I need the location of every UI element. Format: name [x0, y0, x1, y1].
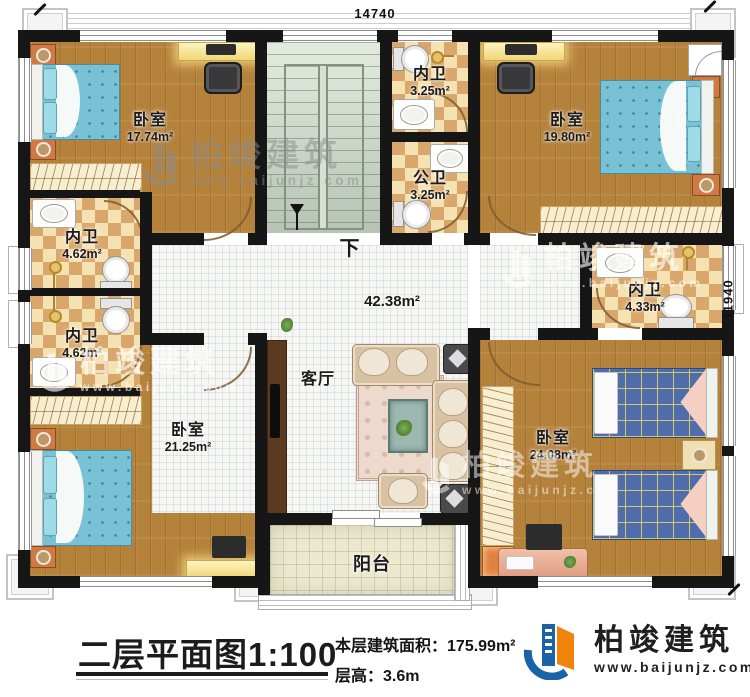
wardrobe — [30, 396, 142, 425]
brand-url: www.baijunjz.com — [594, 660, 750, 674]
window — [18, 452, 32, 550]
sink — [32, 199, 76, 228]
door-arc — [204, 197, 252, 241]
room-label-bath-public: 公卫 3.25m² — [385, 170, 475, 202]
brand-name: 柏竣建筑 — [594, 626, 750, 656]
sink — [32, 357, 76, 387]
sofa-cushion — [438, 388, 468, 416]
office-chair — [497, 62, 535, 94]
tv — [270, 384, 280, 438]
sofa-cushion — [358, 348, 390, 376]
nightstand — [30, 428, 56, 450]
computer — [212, 536, 246, 558]
bed-headboard — [701, 80, 714, 174]
wall — [248, 233, 267, 245]
sink — [596, 247, 644, 278]
floor-height-stat: 层高：3.6m — [335, 662, 419, 686]
wall — [30, 388, 140, 396]
toilet-bowl — [402, 200, 431, 229]
wall — [392, 132, 468, 142]
pillow — [594, 372, 618, 434]
room-label-bath-bl: 内卫 4.62m² — [37, 328, 127, 360]
wall — [468, 328, 490, 340]
towel-knob — [49, 310, 62, 323]
wall — [464, 233, 490, 245]
window — [80, 576, 212, 588]
stairs-down-label: 下 — [330, 238, 370, 260]
room-label-bedroom-bl: 卧室 21.25m² — [138, 422, 238, 454]
wardrobe — [30, 163, 142, 192]
pillow — [43, 102, 57, 134]
balcony-label: 阳台 — [332, 554, 412, 574]
wall — [580, 245, 592, 340]
living-name-label: 客厅 — [278, 371, 358, 389]
side-table — [440, 484, 470, 514]
bed-sheet — [660, 81, 686, 171]
wall — [255, 30, 267, 245]
brand-logo: 柏竣建筑 www.baijunjz.com — [520, 620, 750, 680]
plan-title: 二层平面图1:100 — [78, 628, 337, 676]
computer — [526, 524, 562, 550]
wall — [140, 333, 204, 345]
keyboard — [506, 556, 534, 570]
sofa-cushion — [438, 452, 468, 480]
wall — [140, 192, 152, 345]
room-label-bath-top: 内卫 3.25m² — [385, 66, 475, 98]
wall — [380, 233, 432, 245]
pillow — [43, 68, 57, 100]
window — [283, 30, 377, 42]
hallway-floor — [480, 245, 580, 340]
wall — [538, 233, 722, 245]
wall — [420, 513, 468, 525]
wall — [30, 190, 140, 198]
title-block: 二层平面图1:100 本层建筑面积：175.99m² 层高：3.6m 柏竣建筑 … — [0, 612, 750, 697]
wall — [468, 30, 480, 245]
nightstand — [30, 44, 56, 66]
window — [18, 248, 32, 290]
nightstand — [692, 174, 720, 196]
bed-footboard — [706, 368, 718, 438]
balcony-railing — [258, 594, 472, 610]
floor-plan-page: 14740 11940 卧室 17.74m² 内卫 4.62m² 内卫 4.62… — [0, 0, 750, 697]
wall — [30, 288, 140, 296]
wardrobe — [540, 206, 724, 235]
nightstand — [30, 546, 56, 568]
title-underline — [76, 672, 328, 676]
printer — [206, 44, 236, 55]
printer — [505, 44, 537, 55]
brand-logo-icon — [520, 620, 584, 680]
window — [538, 576, 652, 588]
pillow — [43, 498, 57, 536]
window — [80, 30, 226, 42]
window — [18, 58, 32, 142]
towel-knob — [49, 261, 62, 274]
window — [722, 356, 736, 446]
pillow — [594, 474, 618, 536]
stair-direction-arrow — [290, 204, 304, 232]
dimension-right: 11940 — [721, 260, 736, 340]
room-label-bedroom-tr: 卧室 19.80m² — [517, 112, 617, 144]
wall — [538, 328, 598, 340]
sliding-door-panel — [374, 518, 422, 527]
sofa-cushion — [396, 348, 428, 376]
sofa-cushion — [388, 478, 418, 504]
title-underline-thin — [76, 679, 328, 680]
wall-hook — [431, 51, 444, 64]
floor-area-stat: 本层建筑面积：175.99m² — [335, 632, 516, 656]
room-label-bath-tl: 内卫 4.62m² — [37, 229, 127, 261]
wall — [468, 340, 480, 576]
wall-hook — [682, 246, 695, 259]
window — [552, 30, 658, 42]
dimension-top: 14740 — [325, 6, 425, 21]
wardrobe — [482, 386, 514, 546]
nightstand — [30, 138, 56, 160]
bed-footboard — [706, 470, 718, 540]
sliding-door-panel — [332, 510, 380, 519]
sofa-cushion — [438, 420, 468, 448]
wall — [380, 30, 392, 245]
room-label-bedroom-br: 卧室 24.08m² — [503, 430, 603, 462]
wall — [258, 513, 270, 595]
sink — [430, 144, 470, 173]
stair-center-rail — [318, 64, 328, 230]
shower-tray — [688, 44, 722, 76]
window — [722, 456, 736, 556]
room-label-bedroom-tl: 卧室 17.74m² — [100, 112, 200, 144]
nightstand — [682, 440, 716, 470]
pillow — [43, 456, 57, 494]
office-chair — [204, 62, 242, 94]
living-area-label: 42.38m² — [342, 294, 442, 311]
wall — [140, 233, 204, 245]
pillow — [687, 86, 701, 122]
window — [398, 30, 452, 42]
room-label-bath-r: 内卫 4.33m² — [600, 282, 690, 314]
pillow — [687, 126, 701, 162]
window — [722, 60, 736, 188]
window — [18, 302, 32, 344]
